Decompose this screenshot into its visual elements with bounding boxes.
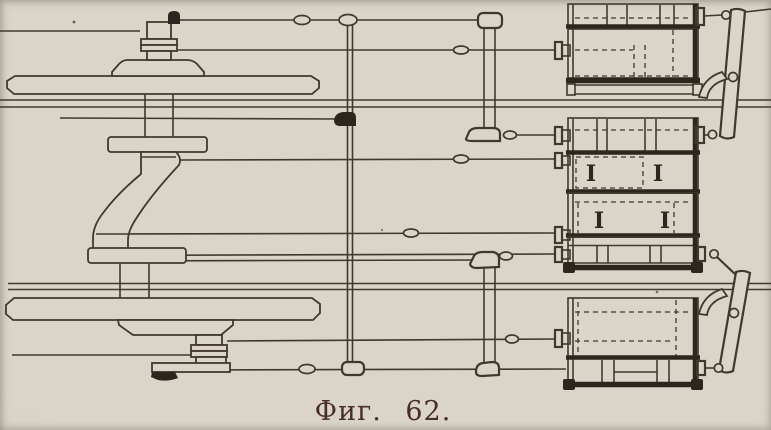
box-left-stub (555, 42, 562, 59)
beam-marks: I I I I (586, 161, 670, 234)
center-pull-rod (334, 24, 364, 375)
box-right-stub (698, 247, 705, 261)
lower-bell-crank-lever (699, 250, 750, 373)
spreader-top-cap (470, 252, 499, 268)
box-left-stub (555, 330, 562, 347)
box-left-stub (555, 153, 562, 168)
box-3 (555, 118, 704, 193)
box-left-stub (555, 247, 562, 262)
bracket-foot (151, 372, 178, 381)
lever-bar (719, 271, 750, 373)
crank-axle (88, 137, 207, 298)
upper-bell-crank-lever (699, 9, 771, 139)
box-left-stub (555, 227, 562, 243)
box-2 (555, 29, 702, 95)
spreader-bottom-cap (466, 128, 500, 141)
rod-wedge-fitting (334, 112, 356, 126)
hub-bracket (152, 363, 230, 372)
crank-web-lower (88, 248, 186, 263)
i-beam-mark: I (653, 161, 663, 187)
top-wheel-body (7, 76, 319, 94)
axle-clevis (168, 11, 180, 24)
box-4 (555, 193, 700, 243)
spreader-top-cap (478, 13, 502, 28)
lever-fillet-arm (699, 289, 727, 315)
box-6 (555, 298, 705, 390)
bottom-wheel-body (6, 298, 320, 320)
i-beam-mark: I (586, 161, 596, 187)
crank-web-upper (108, 137, 207, 152)
figure-plate: I I I I Фиг. 62. (0, 0, 771, 430)
rod-bottom-clevis (342, 362, 364, 375)
rod-joints (294, 15, 519, 374)
i-beam-mark: I (594, 208, 604, 234)
top-wheel-hub (112, 60, 204, 76)
i-beam-mark: I (660, 208, 670, 234)
box-5 (555, 237, 705, 273)
bottom-wheel-hub (118, 320, 233, 335)
spreader-bottom-cap (476, 362, 499, 376)
bottom-wheel (6, 298, 320, 381)
equipment-boxes (555, 4, 705, 390)
box-left-stub (555, 127, 562, 144)
figure-caption: Фиг. 62. (268, 396, 498, 427)
upper-spreader-bar (466, 13, 502, 141)
box-1 (566, 4, 704, 27)
lower-spreader-bar (470, 252, 499, 376)
brake-rigging-drawing: I I I I (0, 0, 771, 430)
